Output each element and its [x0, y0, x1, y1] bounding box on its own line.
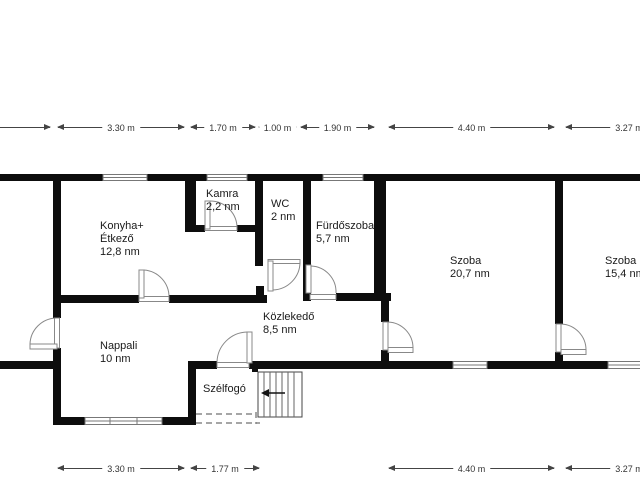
room-label-furdoszoba: Fürdőszoba 5,7 nm: [316, 220, 374, 246]
wall-west-lower: [53, 348, 61, 425]
window-szoba-nagy: [453, 362, 487, 369]
room-label-konyha: Konyha+ Étkező 12,8 nm: [100, 220, 144, 259]
wall-furdoszoba-bottom: [336, 293, 391, 301]
door-kozlekedo-szoba: [383, 322, 413, 353]
door-wc: [268, 260, 300, 292]
dimension-top-327: 3.27 m: [565, 123, 640, 133]
room-label-szoba-nagy: Szoba 20,7 nm: [450, 255, 490, 281]
dimension-bottom-330: 3.30 m: [57, 464, 185, 474]
door-nappali-west: [30, 318, 60, 349]
dimension-bottom-177: 1.77 m: [190, 464, 260, 474]
window-kamra: [207, 175, 247, 181]
room-label-nappali: Nappali 10 nm: [100, 340, 137, 366]
door-furdoszoba: [306, 265, 336, 300]
room-label-kozlekedo: Közlekedő 8,5 nm: [263, 311, 314, 337]
window-nappali: [85, 418, 162, 425]
wall-kozlekedo-bottom-left: [188, 361, 217, 369]
floor-plan-canvas: Konyha+ Étkező 12,8 nm Kamra 2,2 nm WC 2…: [0, 0, 640, 480]
dimension-bottom-440: 4.40 m: [388, 464, 555, 474]
wall-kamra-bottom-right: [237, 225, 263, 232]
room-label-szelfogo: Szélfogó: [203, 383, 246, 396]
room-label-szoba-kis: Szoba 15,4 nm: [605, 255, 640, 281]
porch-dashed-outline: [196, 412, 260, 424]
wall-top-exterior: [0, 174, 640, 181]
window-szoba-kis: [608, 362, 640, 369]
wall-nappali-bottom-left: [53, 417, 85, 425]
dimension-top-440: 4.40 m: [388, 123, 555, 133]
wall-konyha-nappali-left: [53, 295, 139, 303]
wall-bottom-mid: [249, 361, 453, 369]
door-szelfogo: [217, 332, 252, 368]
wall-konyha-nappali-right: [169, 295, 267, 303]
dimension-top-190: 1.90 m: [300, 123, 375, 133]
wall-szoba-szoba-upper: [555, 174, 563, 324]
door-szoba-szoba: [556, 324, 586, 355]
wall-kamra-bottom-left: [185, 225, 205, 232]
dimension-top-330: 3.30 m: [57, 123, 185, 133]
door-konyha: [139, 270, 169, 302]
entry-stairs: [258, 372, 302, 417]
wall-nappali-szelfogo: [188, 361, 196, 425]
dimension-top-100: 1.00 m: [258, 123, 297, 133]
wall-nappali-bottom-right: [162, 417, 196, 425]
dimension-bottom-327: 3.27 m: [565, 464, 640, 474]
wall-bottom-szoba: [487, 361, 608, 369]
dimension-top-170: 1.70 m: [190, 123, 256, 133]
wall-konyha-kamra: [185, 174, 196, 232]
wall-kamra-wc: [255, 174, 263, 266]
wall-west-room-bottom: [0, 361, 53, 369]
window-konyha: [103, 175, 147, 181]
dimension-top-edge-stub: [0, 123, 51, 133]
room-label-wc: WC 2 nm: [271, 198, 295, 224]
wall-furdoszoba-szoba: [374, 174, 386, 301]
room-label-kamra: Kamra 2,2 nm: [206, 188, 240, 214]
window-furdoszoba: [323, 175, 363, 181]
